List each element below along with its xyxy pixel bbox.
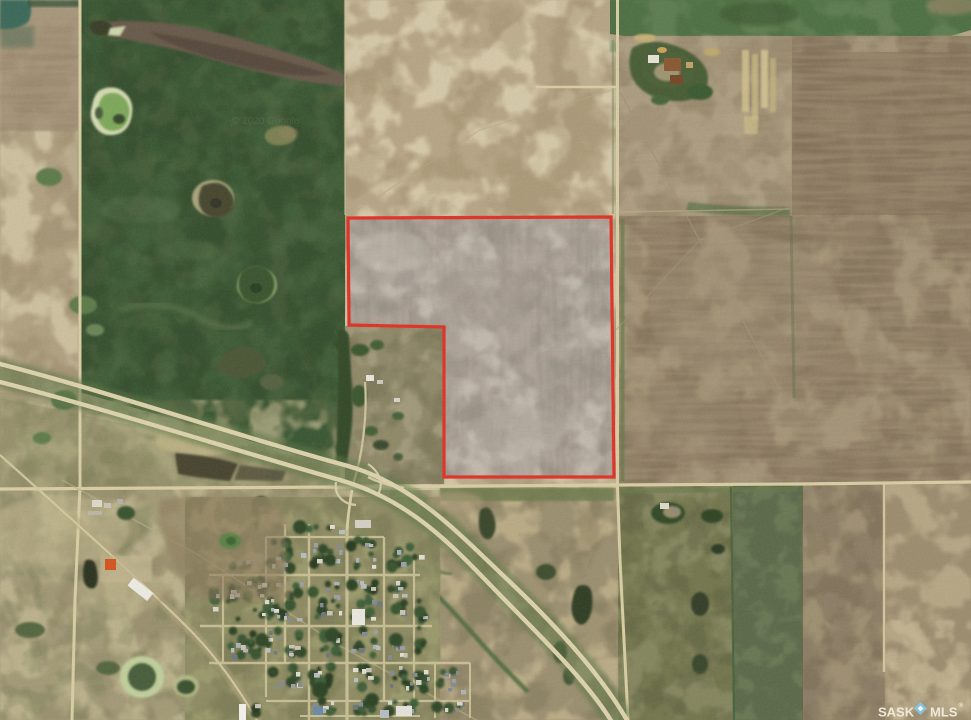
svg-text:MLS: MLS xyxy=(930,705,958,720)
svg-text:SASK: SASK xyxy=(878,705,915,720)
svg-text:®: ® xyxy=(959,701,964,709)
